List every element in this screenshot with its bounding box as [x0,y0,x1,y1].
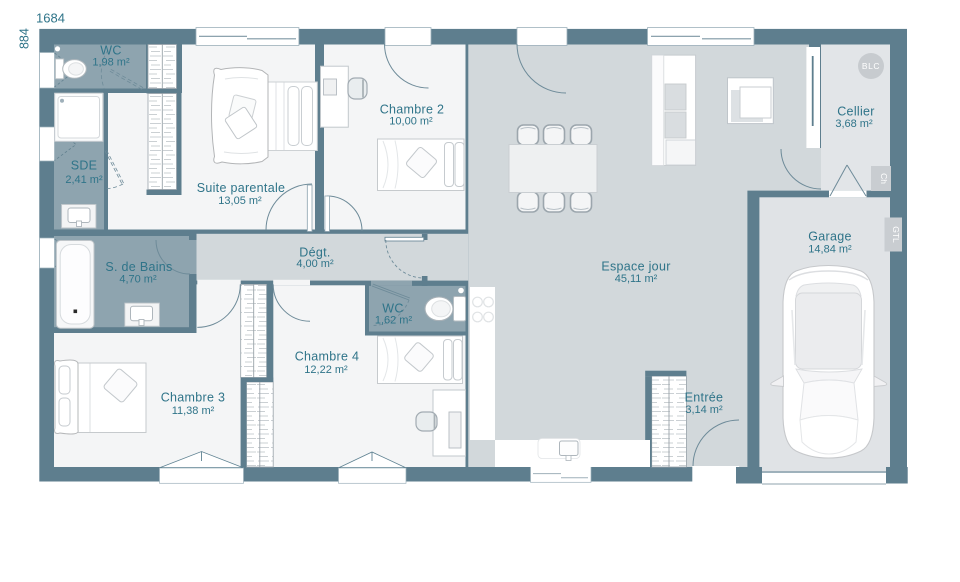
svg-text:1,98 m²: 1,98 m² [92,57,130,69]
svg-text:Chambre 3: Chambre 3 [161,391,226,405]
svg-text:SDE: SDE [71,159,98,173]
svg-text:1,62 m²: 1,62 m² [375,315,413,327]
svg-text:14,84 m²: 14,84 m² [808,244,852,256]
svg-text:Chambre 4: Chambre 4 [295,350,360,364]
svg-text:11,38 m²: 11,38 m² [172,405,215,417]
svg-text:Entrée: Entrée [685,391,724,405]
svg-text:Ch: Ch [879,173,889,184]
svg-text:BLC: BLC [862,61,880,71]
svg-text:4,00 m²: 4,00 m² [296,258,334,270]
svg-text:Suite parentale: Suite parentale [197,181,286,195]
svg-text:Espace jour: Espace jour [601,260,670,274]
svg-text:3,14 m²: 3,14 m² [685,404,723,416]
svg-text:GTL: GTL [891,226,901,243]
svg-text:WC: WC [100,44,121,58]
svg-text:4,70 m²: 4,70 m² [119,274,157,286]
svg-text:10,00 m²: 10,00 m² [389,116,433,128]
svg-text:Chambre 2: Chambre 2 [380,103,445,117]
svg-text:2,41 m²: 2,41 m² [65,174,103,186]
svg-text:13,05 m²: 13,05 m² [218,195,262,207]
svg-text:S. de Bains: S. de Bains [105,260,172,274]
svg-text:3,68 m²: 3,68 m² [835,118,873,130]
svg-text:WC: WC [382,302,403,316]
svg-text:884: 884 [18,28,32,49]
svg-text:Garage: Garage [808,230,852,244]
svg-text:Cellier: Cellier [837,105,875,119]
svg-text:45,11 m²: 45,11 m² [615,273,658,285]
svg-text:1684: 1684 [36,10,65,25]
svg-text:12,22 m²: 12,22 m² [304,364,348,376]
